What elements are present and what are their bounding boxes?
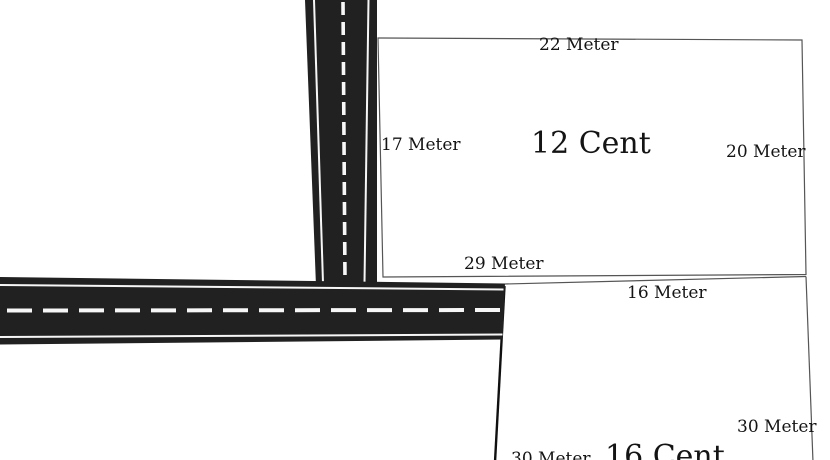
horizontal-road: [0, 277, 505, 345]
plot-12-cent-left-measurement: 17 Meter: [381, 136, 461, 155]
plot-16-cent-bottom-measurement: 30 Meter: [511, 450, 591, 460]
plot-16-cent-right-measurement: 30 Meter: [737, 418, 817, 437]
plot-12-cent-bottom-measurement: 29 Meter: [464, 255, 544, 274]
vertical-road: [305, 0, 377, 286]
plot-12-cent-title: 12 Cent: [531, 127, 651, 160]
plot-12-cent-right-measurement: 20 Meter: [726, 143, 806, 162]
site-plan-drawing: [0, 0, 830, 460]
plot-16-cent-top-measurement: 16 Meter: [627, 284, 707, 303]
site-plan: 22 Meter 17 Meter 12 Cent 20 Meter 29 Me…: [0, 0, 830, 460]
plot-12-cent-top-measurement: 22 Meter: [539, 36, 619, 55]
plot-16-cent-title: 16 Cent: [605, 440, 725, 460]
